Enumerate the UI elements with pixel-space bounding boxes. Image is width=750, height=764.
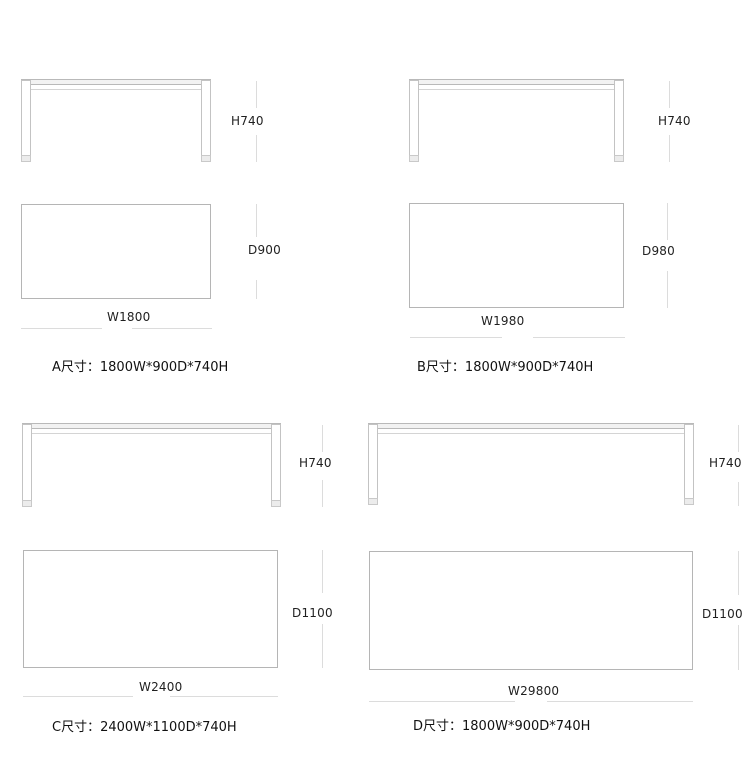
- depth-dim-line: [256, 204, 257, 237]
- apron-line: [377, 433, 685, 434]
- front-view-table-d: [368, 423, 694, 505]
- height-dim-line: [669, 135, 670, 162]
- height-dim-line: [322, 480, 323, 507]
- leg-foot: [368, 498, 378, 505]
- front-view-table-a: [21, 79, 211, 162]
- depth-dim-line: [322, 550, 323, 593]
- leg-foot: [201, 155, 211, 162]
- depth-dim-line: [738, 551, 739, 595]
- front-view-table-c: [22, 423, 281, 507]
- width-dim-label: W2400: [139, 680, 182, 694]
- height-dim-label: H740: [658, 114, 691, 128]
- top-view-table-d: [369, 551, 693, 670]
- top-view-table-c: [23, 550, 278, 668]
- width-dim-line: [23, 696, 133, 697]
- depth-dim-label: D980: [642, 244, 675, 258]
- apron-line: [418, 89, 615, 90]
- table-leg-right: [201, 80, 211, 162]
- height-dim-line: [669, 81, 670, 108]
- size-caption-c: C尺寸：2400W*1100D*740H: [52, 716, 237, 735]
- tabletop: [22, 423, 281, 429]
- height-dim-line: [738, 425, 739, 452]
- apron-line: [31, 433, 272, 434]
- depth-dim-line: [322, 624, 323, 668]
- leg-foot: [22, 500, 32, 507]
- table-leg-left: [368, 424, 378, 505]
- depth-dim-line: [667, 203, 668, 240]
- table-leg-left: [21, 80, 31, 162]
- leg-foot: [409, 155, 419, 162]
- width-dim-line: [170, 696, 278, 697]
- top-view-table-b: [409, 203, 624, 308]
- width-dim-line: [21, 328, 102, 329]
- apron-line: [30, 89, 202, 90]
- dimension-diagram: H740 D900 W1800 A尺寸：1800W*900D*740H H740…: [0, 0, 750, 764]
- height-dim-line: [256, 81, 257, 108]
- size-caption-b: B尺寸：1800W*900D*740H: [417, 356, 593, 375]
- top-view-table-a: [21, 204, 211, 299]
- table-leg-right: [614, 80, 624, 162]
- size-caption-a: A尺寸：1800W*900D*740H: [52, 356, 228, 375]
- depth-dim-line: [256, 280, 257, 299]
- width-dim-label: W1800: [107, 310, 150, 324]
- leg-foot: [21, 155, 31, 162]
- height-dim-line: [738, 482, 739, 506]
- table-leg-left: [409, 80, 419, 162]
- width-dim-line: [410, 337, 502, 338]
- width-dim-line: [132, 328, 212, 329]
- table-leg-right: [271, 424, 281, 507]
- table-leg-left: [22, 424, 32, 507]
- tabletop: [21, 79, 211, 85]
- width-dim-label: W1980: [481, 314, 524, 328]
- width-dim-line: [369, 701, 515, 702]
- depth-dim-label: D1100: [702, 607, 743, 621]
- height-dim-label: H740: [231, 114, 264, 128]
- leg-foot: [271, 500, 281, 507]
- table-leg-right: [684, 424, 694, 505]
- width-dim-label: W29800: [508, 684, 559, 698]
- depth-dim-label: D1100: [292, 606, 333, 620]
- height-dim-line: [256, 135, 257, 162]
- height-dim-label: H740: [299, 456, 332, 470]
- depth-dim-line: [738, 625, 739, 670]
- tabletop: [409, 79, 624, 85]
- leg-foot: [614, 155, 624, 162]
- width-dim-line: [533, 337, 625, 338]
- height-dim-label: H740: [709, 456, 742, 470]
- size-caption-d: D尺寸：1800W*900D*740H: [413, 715, 590, 734]
- leg-foot: [684, 498, 694, 505]
- front-view-table-b: [409, 79, 624, 162]
- tabletop: [368, 423, 694, 429]
- depth-dim-label: D900: [248, 243, 281, 257]
- depth-dim-line: [667, 271, 668, 308]
- height-dim-line: [322, 425, 323, 452]
- width-dim-line: [547, 701, 693, 702]
